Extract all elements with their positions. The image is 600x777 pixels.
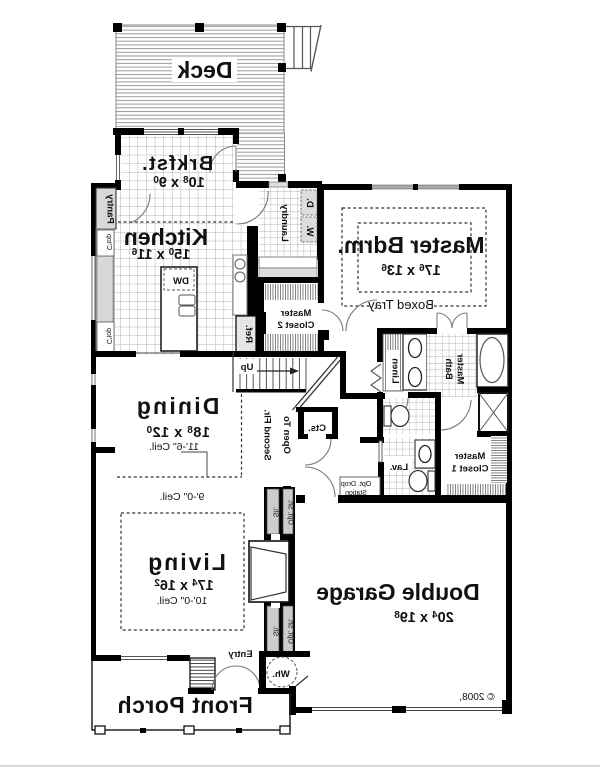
svg-text:Laundry: Laundry [279, 204, 290, 242]
svg-text:Opt. Sh.: Opt. Sh. [287, 618, 294, 644]
svg-text:D.: D. [304, 198, 315, 208]
svg-text:11'-6" Ceil.: 11'-6" Ceil. [149, 441, 199, 453]
svg-text:C'top: C'top [105, 328, 112, 344]
svg-text:Linen: Linen [390, 358, 401, 384]
svg-text:108 x 90: 108 x 90 [153, 175, 205, 191]
svg-text:204 x 198: 204 x 198 [394, 610, 454, 626]
svg-text:Deck: Deck [177, 57, 232, 83]
svg-text:188 x 120: 188 x 120 [146, 425, 210, 441]
svg-text:Closet 1: Closet 1 [451, 464, 489, 475]
svg-text:Closet 2: Closet 2 [278, 320, 315, 331]
svg-text:174 x 162: 174 x 162 [154, 578, 214, 594]
svg-text:Living: Living [146, 549, 226, 575]
svg-text:Master: Master [280, 308, 311, 319]
svg-text:Cts.: Cts. [308, 423, 326, 434]
svg-text:Second Flr.: Second Flr. [262, 409, 273, 460]
svg-text:DW: DW [173, 276, 189, 287]
svg-text:Open To: Open To [281, 416, 292, 454]
svg-text:Double Garage: Double Garage [316, 579, 480, 605]
svg-text:Ref.: Ref. [243, 325, 254, 343]
svg-text:176 x 136: 176 x 136 [381, 263, 441, 279]
svg-text:150 x 116: 150 x 116 [131, 247, 190, 263]
svg-text:Front Porch: Front Porch [117, 692, 253, 718]
svg-text:Master: Master [455, 353, 466, 384]
svg-text:Entry: Entry [228, 649, 253, 660]
svg-text:Lav.: Lav. [390, 462, 408, 473]
svg-text:Master Bdrm.: Master Bdrm. [338, 232, 485, 258]
svg-text:W.: W. [304, 225, 315, 236]
svg-text:Master: Master [454, 451, 485, 462]
svg-text:10'-0" Ceil.: 10'-0" Ceil. [157, 595, 208, 607]
svg-text:C'top: C'top [105, 234, 112, 250]
svg-text:Wh.: Wh. [272, 669, 289, 680]
svg-text:Sh.: Sh. [272, 507, 279, 518]
svg-text:© 2008,: © 2008, [459, 692, 494, 703]
svg-text:Opt. Sh.: Opt. Sh. [287, 499, 294, 525]
svg-text:Boxed Tray: Boxed Tray [368, 297, 434, 312]
svg-text:Dining: Dining [135, 393, 220, 419]
svg-text:Sh.: Sh. [272, 626, 279, 637]
svg-text:Up: Up [240, 362, 253, 373]
svg-text:9'-0" Ceil.: 9'-0" Ceil. [160, 491, 205, 503]
svg-text:Brkfst.: Brkfst. [141, 153, 213, 175]
svg-text:Opt. Drop: Opt. Drop [341, 481, 371, 488]
svg-text:Station: Station [345, 490, 367, 497]
svg-text:Bath: Bath [443, 358, 454, 379]
svg-text:Pantry: Pantry [105, 194, 116, 224]
